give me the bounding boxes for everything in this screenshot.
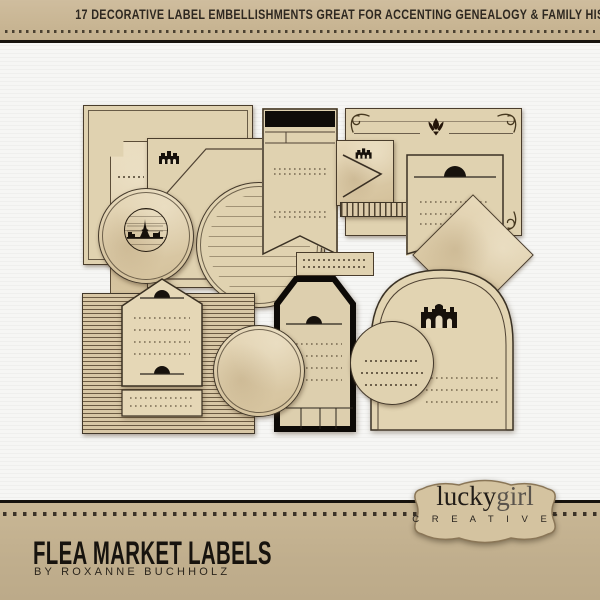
arcade-building-icon [354, 146, 373, 159]
banner-outline [262, 108, 338, 256]
top-banner: 17 DECORATIVE LABEL EMBELLISHMENTS GREAT… [0, 0, 600, 41]
tulip-crown-icon [426, 118, 446, 136]
product-byline: BY ROXANNE BUCHHOLZ [34, 566, 230, 578]
banner-text-wrap: 17 DECORATIVE LABEL EMBELLISHMENTS GREAT… [0, 6, 600, 24]
logo-wordmark: luckygirl [406, 481, 564, 512]
eiffel-skyline-icon [125, 218, 165, 240]
luckygirl-creative-logo-badge: luckygirl C R E A T I V E™ [406, 474, 564, 548]
circle-label-plain [213, 325, 305, 417]
corner-flourish-icon [349, 112, 371, 134]
swallowtail-banner-black-header [262, 108, 338, 256]
labels-collage [65, 95, 520, 435]
black-header-band [265, 111, 335, 127]
semicircle-tab [444, 166, 466, 177]
house-tag-outline [120, 276, 204, 418]
house-tag-label-semicircle-tabs [120, 276, 204, 418]
circle-label-dashed-lines [350, 321, 434, 405]
circle-label-paris-stamp [98, 188, 194, 284]
chevron-label-with-building [336, 140, 394, 206]
banner-tagline: 17 DECORATIVE LABEL EMBELLISHMENTS GREAT… [75, 7, 600, 22]
logo-subtitle: C R E A T I V E™ [406, 514, 564, 525]
palace-icon [421, 304, 457, 328]
banner-dotted-rule [5, 30, 595, 33]
arcade-building-icon [157, 148, 181, 164]
corner-flourish-icon [496, 112, 518, 134]
paris-stamp-circle [124, 208, 168, 252]
